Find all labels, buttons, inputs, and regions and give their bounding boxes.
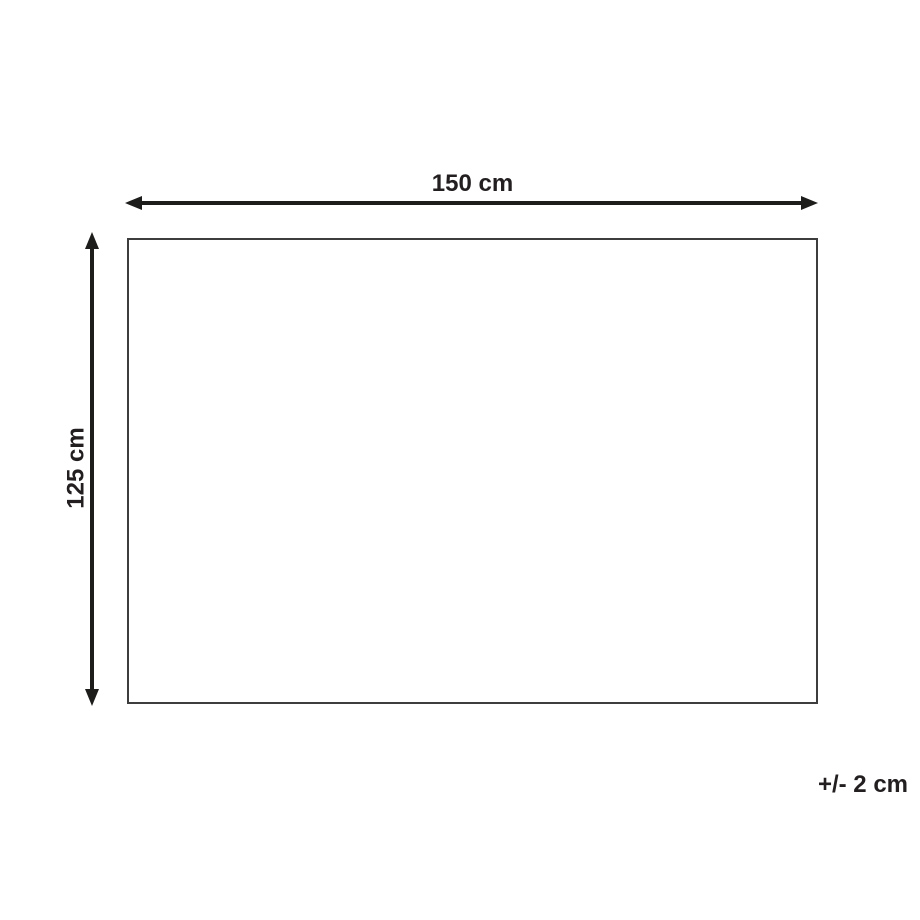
- dimension-diagram-canvas: 150 cm 125 cm +/- 2 cm: [0, 0, 920, 920]
- arrowhead-left-icon: [125, 196, 142, 210]
- width-dimension-arrow-line: [133, 201, 812, 205]
- tolerance-label: +/- 2 cm: [818, 771, 908, 799]
- arrowhead-right-icon: [801, 196, 818, 210]
- height-dimension-label: 125 cm: [63, 427, 91, 508]
- height-dimension-label-wrap: 125 cm: [60, 238, 94, 698]
- product-outline-rectangle: [127, 238, 818, 704]
- width-dimension-label: 150 cm: [127, 170, 818, 198]
